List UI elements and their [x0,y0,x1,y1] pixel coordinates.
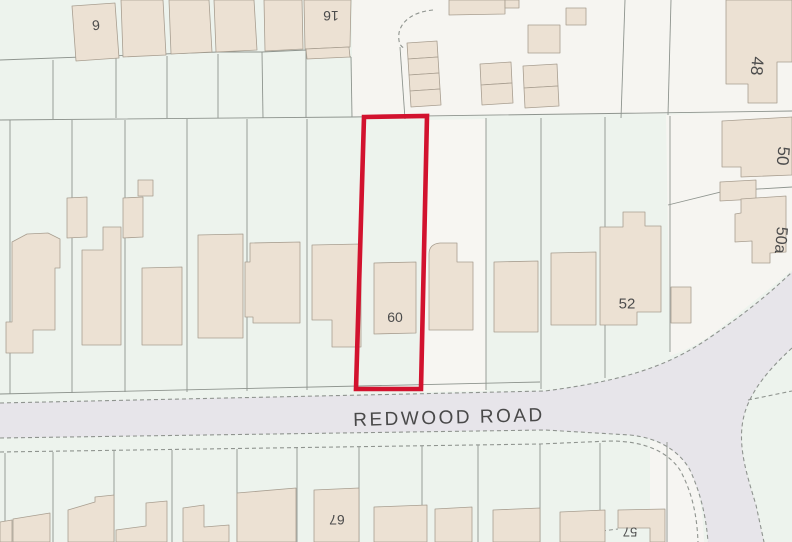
house-number-label: 48 [748,56,767,76]
road-name-label: REDWOOD ROAD [353,406,545,430]
house-number-label: 52 [619,297,636,312]
house-number-label: 9 [91,18,100,33]
house-number-label: 67 [329,513,345,527]
house-number-label: 60 [387,310,403,324]
site-plan-map [0,0,792,542]
house-number-label: 50 [774,146,792,166]
house-number-label: 16 [323,9,339,23]
map-canvas: REDWOOD ROAD 916485050a52606757 [0,0,792,542]
house-number-label: 50a [771,226,789,254]
house-number-label: 57 [623,526,637,539]
